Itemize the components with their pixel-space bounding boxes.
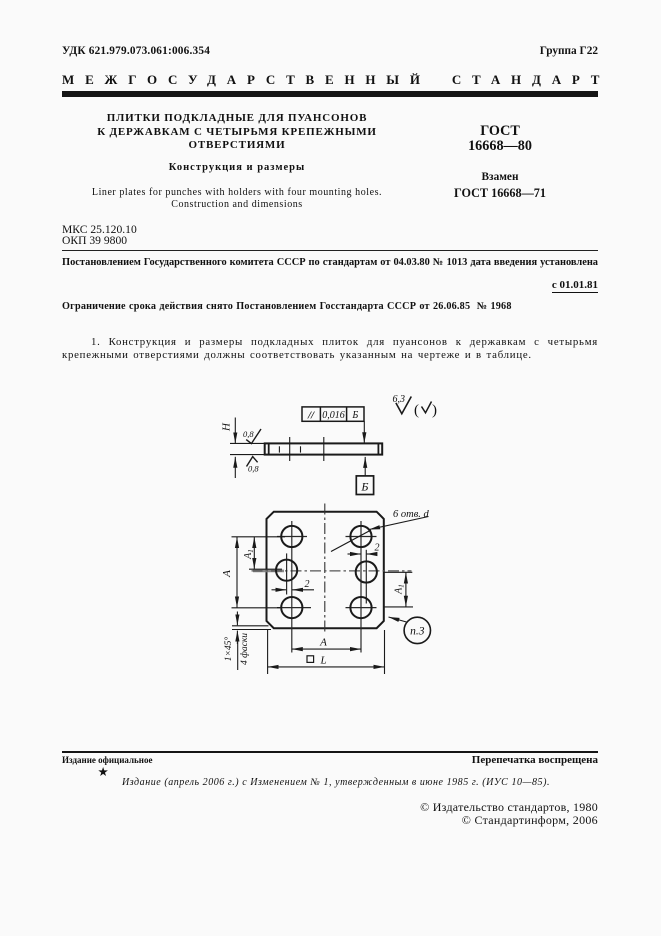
svg-text://: //: [307, 409, 315, 421]
svg-text:Б: Б: [351, 410, 358, 421]
svg-text:2: 2: [305, 579, 310, 590]
svg-text:А1: А1: [243, 549, 255, 560]
svg-text:п.3: п.3: [410, 626, 425, 638]
svg-text:0,016: 0,016: [322, 410, 345, 421]
svg-text:(: (: [414, 403, 419, 419]
svg-text:Б: Б: [360, 480, 368, 494]
svg-text:6,3: 6,3: [393, 394, 406, 405]
svg-text:4 фаски: 4 фаски: [239, 633, 250, 665]
svg-text:А: А: [319, 637, 327, 649]
svg-text:): ): [432, 403, 437, 419]
svg-text:L: L: [319, 655, 326, 667]
svg-text:0,8: 0,8: [248, 464, 259, 474]
svg-text:6 отв. d: 6 отв. d: [393, 509, 430, 520]
svg-text:А: А: [221, 570, 233, 578]
svg-text:1×45°: 1×45°: [223, 637, 234, 662]
svg-text:H: H: [221, 422, 233, 432]
svg-text:А1: А1: [394, 584, 406, 595]
svg-text:0,8: 0,8: [243, 429, 254, 439]
svg-text:2: 2: [375, 543, 380, 554]
